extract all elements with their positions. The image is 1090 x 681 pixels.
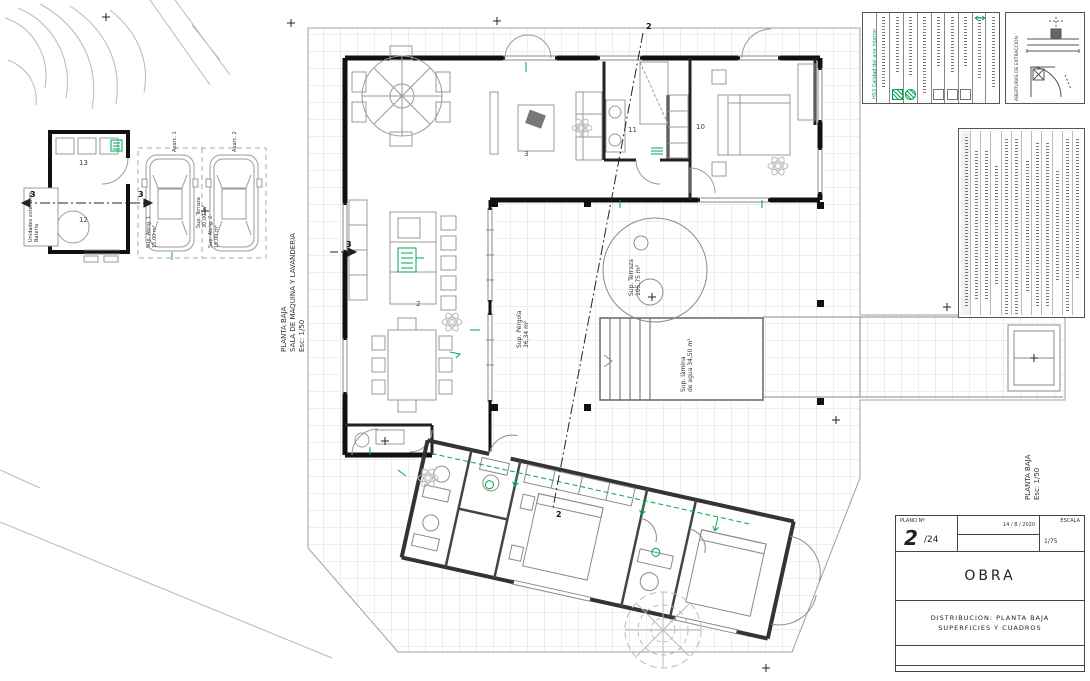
section-marker-2-bottom: 2: [556, 510, 562, 519]
room-number-10: 10: [696, 123, 705, 131]
title-block-empty-row: [895, 646, 1085, 666]
plano-label: PLANO Nº: [900, 518, 925, 524]
room-number-11: 11: [628, 126, 637, 134]
legend-title-column: HS3 Calidad del aire interior: [863, 13, 877, 103]
area-label-pergola: Sup. Pérgola36,34 m²: [516, 310, 530, 348]
sheet-number: 2: [904, 526, 918, 550]
room-number-3: 3: [524, 150, 528, 158]
exterior-units-label: Unidades exteriores Batería: [28, 192, 40, 242]
area-label-abrigo1: Sup. Abrig. 115,00 m²: [146, 216, 158, 248]
sheet-date: 14 / 8 / 2020: [1003, 522, 1035, 528]
escala-value: 1/75: [1044, 538, 1057, 545]
machine-room-plan-title: PLANTA BAJA SALA DE MAQUINA Y LAVANDERIA…: [280, 233, 307, 352]
extraction-detail-drawing: [1021, 15, 1083, 103]
label-aparc2: Aparc. 2: [232, 131, 238, 152]
room-number-2: 2: [416, 300, 420, 308]
floor-plan-sheet: { "sheet": { "type": "architectural floo…: [0, 0, 1090, 681]
section-marker-3-mid: 3: [346, 240, 352, 249]
main-plan-title: PLANTA BAJA Esc: 1/50: [1024, 455, 1042, 500]
obra-title: OBRA: [895, 552, 1085, 601]
room-number-13: 13: [79, 159, 88, 167]
area-label-abrigo2: Sup. Abrig. 215,00 m²: [208, 216, 220, 248]
sheet-description: DISTRIBUCION: PLANTA BAJA SUPERFICIES Y …: [895, 601, 1085, 646]
area-label-carport-terraza: Sup. Terraza30,00 m²: [196, 197, 208, 228]
room-number-12: 12: [79, 216, 88, 224]
surface-schedule-table: [958, 128, 1085, 318]
section-marker-2-top: 2: [646, 22, 652, 31]
ventilation-legend-table: HS3 Calidad del aire interior: [862, 12, 1000, 104]
title-block-row1: PLANO Nº 2 /24 14 / 8 / 2020 ESCALA 1/75: [895, 515, 1085, 552]
escala-label: ESCALA: [1060, 518, 1080, 524]
label-aparc1: Aparc. 1: [172, 131, 178, 152]
section-marker-3-right: 3: [138, 190, 144, 199]
title-block: PLANO Nº 2 /24 14 / 8 / 2020 ESCALA 1/75…: [895, 515, 1085, 672]
area-label-lamina-agua: Sup. láminade agua 34,50 m²: [680, 338, 694, 392]
extraction-detail-panel: ABERTURAS DE EXTRACCION: [1005, 12, 1085, 104]
area-label-terraza: Sup. Terraza105,75 m²: [628, 259, 642, 296]
title-block-footer-strip: [895, 666, 1085, 672]
sheet-total: /24: [924, 535, 938, 545]
